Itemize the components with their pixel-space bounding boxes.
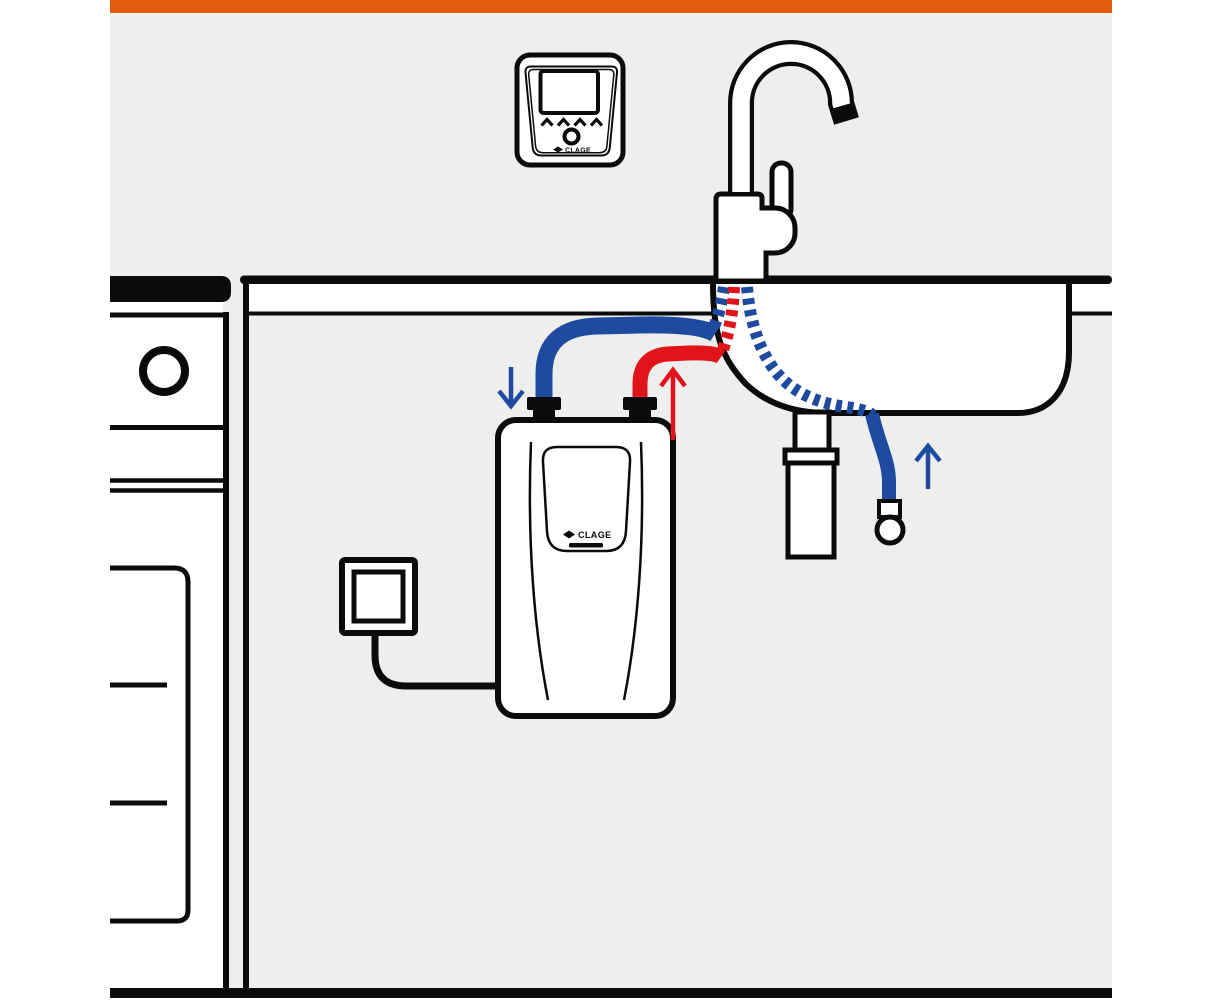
appliance-knob (143, 350, 185, 392)
appliance-counter-band (110, 276, 231, 302)
installation-diagram-page: CLAGE (0, 0, 1223, 1000)
remote-logo: CLAGE (565, 148, 591, 155)
heater-sublabel-bar (569, 543, 603, 548)
counter-top-band (240, 276, 1112, 285)
header-divider-line (110, 13, 1112, 16)
shut-off-valve (877, 517, 903, 543)
under-sink-water-heater: CLAGE (498, 397, 673, 716)
drain-tailpiece (795, 412, 829, 450)
cold-inlet-fitting (527, 397, 561, 410)
heater-logo: CLAGE (578, 530, 612, 540)
sink-basin (713, 284, 1069, 413)
remote-button (565, 130, 579, 144)
power-outlet-socket (354, 572, 403, 621)
drain-trap-body (788, 463, 834, 557)
installation-diagram: CLAGE (0, 0, 1223, 1000)
hot-outlet-fitting (623, 397, 657, 410)
orange-header-bar (110, 0, 1112, 13)
remote-display (541, 71, 599, 113)
floor-base-strip (110, 988, 1112, 998)
built-in-appliance (110, 276, 231, 988)
appliance-front-panel (110, 302, 223, 988)
wall-remote-control: CLAGE (517, 55, 623, 165)
